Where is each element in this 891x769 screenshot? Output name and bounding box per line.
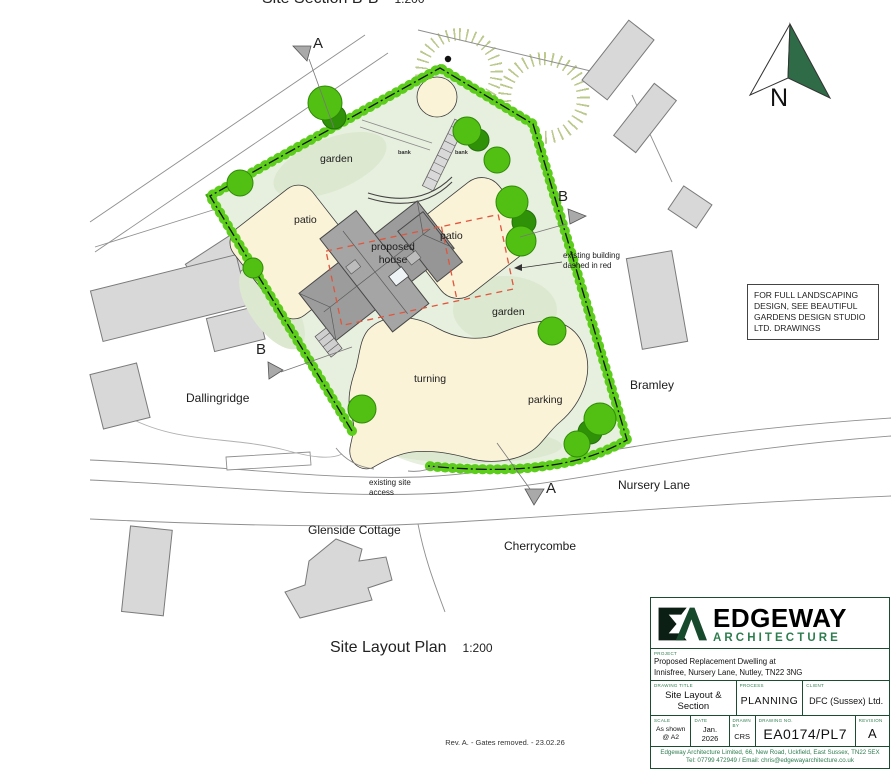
north-label: N [770,84,788,113]
north-arrow-icon [750,24,830,98]
client-value: DFC (Sussex) Ltd. [806,689,886,713]
brand-wordmark: EDGEWAY ARCHITECTURE [713,605,847,644]
landscaping-note-box: FOR FULL LANDSCAPING DESIGN, SEE BEAUTIF… [747,284,879,340]
label-dallingridge: Dallingridge [186,391,249,405]
brand-name: EDGEWAY [713,605,847,631]
label-bank-left: bank [398,150,411,156]
drawing-number-value: EA0174/PL7 [759,724,852,744]
project-line1: Proposed Replacement Dwelling at [654,657,886,668]
brand-subtitle: ARCHITECTURE [713,632,847,644]
scale-date-drawn-number-row: SCALE As shown @ A2 DATE Jan. 2026 DRAWN… [651,715,889,746]
section-b-left-triangle [268,362,283,379]
note-existing-building: existing building dashed in red [563,251,635,271]
revision-value: A [859,724,886,744]
label-patio-right: patio [440,230,463,242]
section-marker-b-left: B [256,341,266,358]
label-garden-right: garden [492,306,525,318]
title-block-footer: Edgeway Architecture Limited, 66, New Ro… [651,746,889,768]
label-cherrycombe: Cherrycombe [504,539,576,553]
note-site-access: existing site access [369,478,423,498]
label-glenside-cottage: Glenside Cottage [308,523,401,537]
drawn-by-label: DRAWN BY [733,718,752,728]
label-nursery-lane: Nursery Lane [618,478,690,492]
drawing-title-value: Site Layout & Section [654,689,733,713]
ea-monogram-icon [657,604,707,644]
footer-address: Edgeway Architecture Limited, 66, New Ro… [652,749,888,757]
process-value: PLANNING [740,689,800,713]
top-paved-circle [417,77,457,117]
title-process-client-row: DRAWING TITLE Site Layout & Section PROC… [651,680,889,715]
label-patio-left: patio [294,214,317,226]
project-row: PROJECT Proposed Replacement Dwelling at… [651,648,889,680]
title-block-logo-row: EDGEWAY ARCHITECTURE [651,598,889,648]
revision-label: REVISION [859,718,886,723]
project-line2: Innisfree, Nursery Lane, Nutley, TN22 3N… [654,668,886,679]
label-parking: parking [528,394,562,406]
date-label: DATE [694,718,725,723]
scale-value: As shown @ A2 [654,724,687,744]
section-marker-a-top: A [313,35,323,52]
top-sheet-title: Site Section B-B1:200 [262,0,425,8]
label-proposed-house: proposed house [362,241,424,267]
client-label: CLIENT [806,683,886,688]
section-a-top-triangle [293,46,311,61]
top-title-text: Site Section B-B [262,0,379,7]
process-label: PROCESS [740,683,800,688]
drawn-by-value: CRS [733,729,752,744]
section-a-bottom-triangle [525,489,544,505]
top-title-scale: 1:200 [395,0,425,6]
section-b-right-triangle [568,209,586,224]
label-bank-right: bank [455,150,468,156]
project-label: PROJECT [654,651,886,656]
scale-label: SCALE [654,718,687,723]
date-value: Jan. 2026 [694,724,725,744]
plan-title-scale: 1:200 [463,641,493,655]
label-garden-top: garden [320,153,353,165]
plan-title: Site Layout Plan1:200 [330,639,493,657]
plan-title-text: Site Layout Plan [330,639,447,656]
drawing-number-label: DRAWING NO. [759,718,852,723]
footer-contact: Tel: 07799 472949 / Email: chris@edgeway… [652,757,888,765]
label-bramley: Bramley [630,378,674,392]
title-block: EDGEWAY ARCHITECTURE PROJECT Proposed Re… [650,597,890,769]
survey-point-dot [445,56,451,62]
section-marker-a-bottom: A [546,480,556,497]
revision-note: Rev. A. - Gates removed. - 23.02.26 [380,738,630,747]
section-marker-b-right: B [558,188,568,205]
label-turning: turning [414,373,446,385]
site-plan-sheet: { "titles": { "top_title": "Site Section… [0,0,891,768]
drawing-title-label: DRAWING TITLE [654,683,733,688]
